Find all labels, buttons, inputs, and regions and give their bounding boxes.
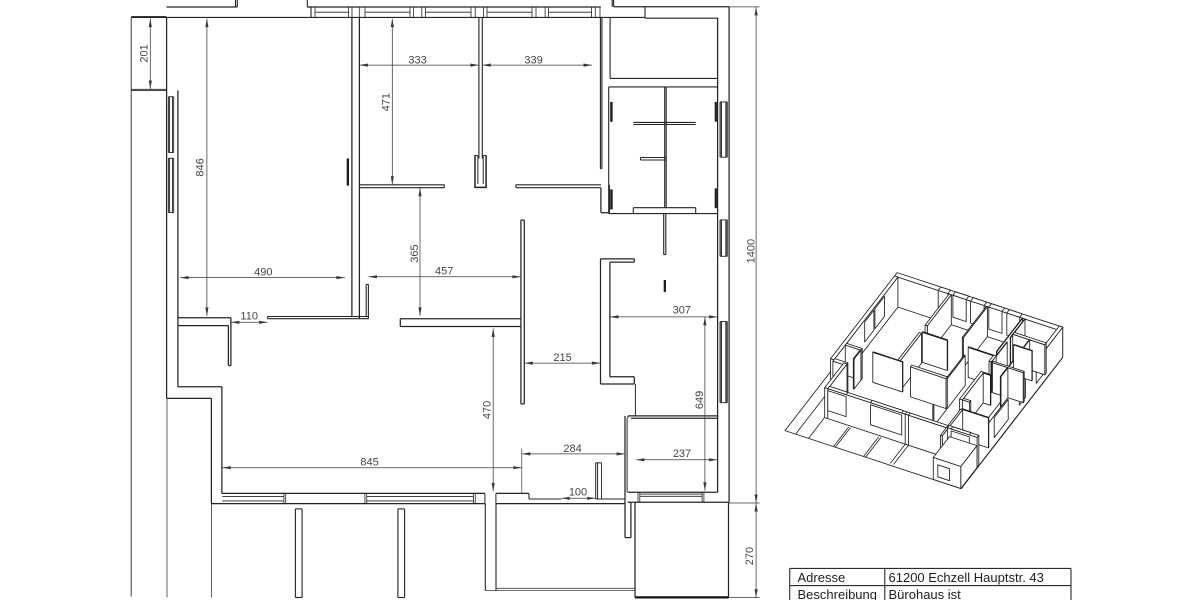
svg-text:237: 237 — [673, 448, 691, 460]
svg-text:490: 490 — [254, 266, 272, 278]
svg-text:61200 Echzell Hauptstr. 43: 61200 Echzell Hauptstr. 43 — [889, 570, 1044, 585]
svg-text:Adresse: Adresse — [798, 570, 846, 585]
svg-text:Beschreibung: Beschreibung — [798, 587, 878, 600]
svg-text:215: 215 — [553, 352, 571, 364]
svg-text:365: 365 — [409, 244, 421, 262]
svg-text:649: 649 — [694, 391, 706, 409]
svg-text:457: 457 — [435, 266, 453, 278]
svg-text:471: 471 — [381, 93, 393, 111]
svg-text:Bürohaus ist: Bürohaus ist — [889, 587, 962, 600]
svg-text:284: 284 — [563, 443, 581, 455]
svg-text:846: 846 — [194, 158, 206, 176]
svg-text:845: 845 — [360, 457, 378, 469]
svg-text:110: 110 — [240, 311, 258, 323]
svg-text:307: 307 — [673, 304, 691, 316]
svg-text:333: 333 — [408, 54, 426, 66]
svg-text:100: 100 — [569, 487, 587, 499]
svg-text:1400: 1400 — [745, 239, 757, 263]
svg-text:470: 470 — [481, 401, 493, 419]
svg-text:339: 339 — [524, 54, 542, 66]
svg-text:201: 201 — [139, 44, 151, 62]
svg-text:270: 270 — [744, 547, 756, 565]
